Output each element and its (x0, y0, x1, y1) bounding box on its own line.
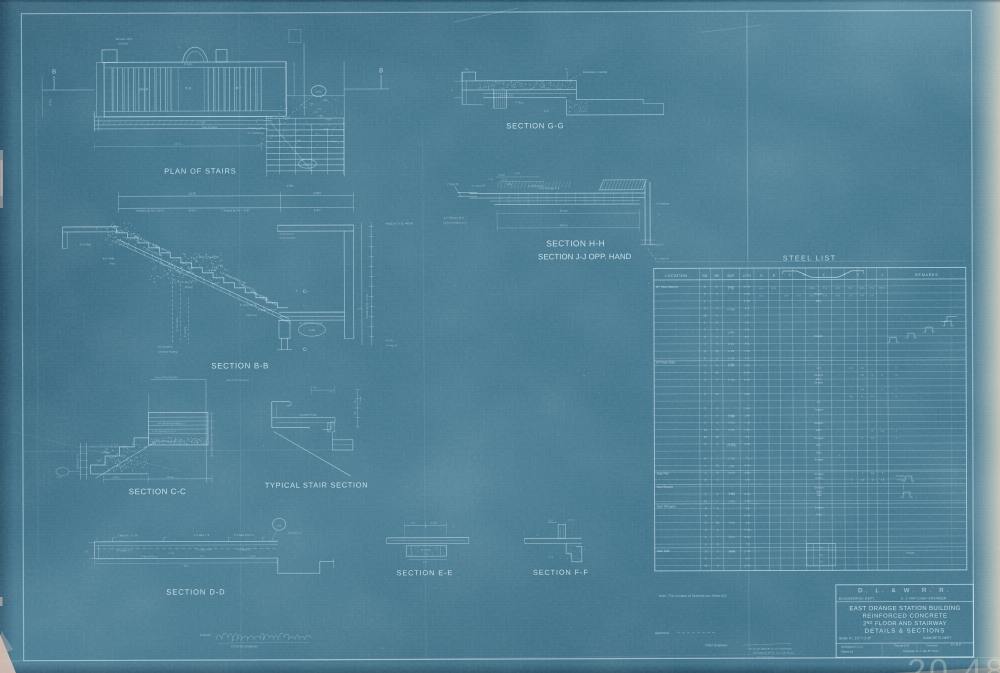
svg-text:1 Rd: 1 Rd (729, 464, 735, 468)
svg-text:6: 6 (659, 213, 661, 216)
svg-text:4½: 4½ (895, 373, 898, 377)
svg-text:½ Rd: ½ Rd (728, 356, 735, 360)
svg-text:B: B (773, 274, 775, 278)
svg-text:2½: 2½ (353, 411, 357, 414)
svg-text:MK: MK (714, 274, 720, 278)
svg-text:F.+ R.P.: F.+ R.P. (951, 643, 962, 647)
svg-text:12: 12 (704, 499, 708, 503)
svg-text:Rog.E.W. Fl. El. +46.88: Rog.E.W. Fl. El. +46.88 (386, 221, 414, 225)
svg-text:2-6: 2-6 (849, 367, 853, 370)
svg-text:8: 8 (704, 285, 706, 289)
svg-text:": " (676, 434, 677, 438)
svg-text:Plaster: Plaster (185, 286, 193, 289)
svg-text:2″ Beam 8'0" 1¼: 2″ Beam 8'0" 1¼ (249, 289, 270, 301)
svg-text:9'-6¼: 9'-6¼ (127, 459, 133, 464)
svg-text:7: 7 (717, 499, 719, 503)
svg-text:5'-3¼: 5'-3¼ (745, 549, 752, 553)
svg-text:REMARKS: REMARKS (915, 273, 938, 277)
svg-text:1″ Sq: 1″ Sq (728, 499, 735, 503)
svg-text:8'-0⅛: 8'-0⅛ (744, 535, 751, 539)
svg-text:Stair Rail: Stair Rail (656, 471, 669, 475)
svg-text:SECTION F-F: SECTION F-F (533, 568, 589, 577)
svg-text:F.V.B: F.V.B (309, 328, 316, 332)
svg-text:3'-9: 3'-9 (223, 269, 228, 273)
svg-text:¾: ¾ (648, 248, 651, 251)
svg-text:5"⅛: 5"⅛ (317, 109, 321, 111)
svg-text:2-8½: 2-8½ (809, 286, 814, 290)
svg-text:Rock Conc of: Rock Conc of (280, 233, 295, 236)
svg-text:3-1″ Bars 8'6: 3-1″ Bars 8'6 (471, 185, 485, 188)
svg-text:ENGINEERING DEPT.: ENGINEERING DEPT. (839, 596, 875, 600)
svg-text:D: D (803, 273, 805, 277)
svg-text:1″ Bars 10½ c.c.: 1″ Bars 10½ c.c. (141, 554, 159, 558)
svg-text:SECTION H-H: SECTION H-H (546, 238, 605, 248)
svg-text:4'-3: 4'-3 (549, 556, 554, 559)
svg-text:1 Rds: 1 Rds (728, 330, 735, 334)
svg-text:¾ Rds: ¾ Rds (727, 307, 735, 311)
svg-text:F: F (844, 273, 846, 277)
svg-text:Straight: Straight (895, 475, 904, 478)
svg-text:2-3 Bars 7'2½: 2-3 Bars 7'2½ (197, 548, 213, 552)
svg-text:9: 9 (716, 363, 718, 367)
svg-text:6'-6: 6'-6 (810, 294, 815, 297)
svg-text:2'-6: 2'-6 (502, 178, 507, 181)
svg-text:Stair Stringers: Stair Stringers (657, 504, 677, 508)
svg-text:1: 1 (704, 321, 706, 325)
svg-text:3″: 3″ (895, 430, 897, 433)
svg-text:3'-0: 3'-0 (836, 287, 841, 290)
svg-text:½ Rd: ½ Rd (728, 442, 735, 446)
svg-text:4: 4 (704, 363, 706, 367)
svg-text:4'-6⅜: 4'-6⅜ (286, 184, 294, 188)
svg-text:4″×6″ Bearing 8'-3 1¼: 4″×6″ Bearing 8'-3 1¼ (152, 430, 176, 433)
svg-text:N.Y.L.&W. RR Co.: N.Y.L.&W. RR Co. (757, 656, 775, 658)
svg-text:6'-3: 6'-3 (759, 287, 764, 290)
svg-text:¾: ¾ (96, 227, 99, 230)
svg-text:31: 31 (716, 463, 720, 467)
svg-text:3: 3 (882, 472, 884, 475)
svg-text:C-: C- (303, 289, 308, 294)
svg-text:1 Rd: 1 Rd (729, 491, 735, 495)
svg-text:12: 12 (704, 428, 708, 432)
svg-text:A: A (760, 274, 763, 278)
svg-text:6'-3½: 6'-3½ (250, 554, 256, 558)
svg-text:G: G (857, 273, 859, 277)
svg-text:4-6: 4-6 (861, 479, 865, 482)
svg-text:As Beam: As Beam (118, 42, 128, 45)
svg-text:1'-6¼: 1'-6¼ (284, 116, 290, 119)
svg-text:7-8¼: 7-8¼ (744, 406, 751, 410)
svg-text:7½: 7½ (85, 549, 88, 553)
svg-text:Concrete Tread: Concrete Tread (299, 414, 317, 417)
svg-text:5: 5 (717, 528, 719, 532)
svg-text:2″ Above of Floor 7'8": 2″ Above of Floor 7'8" (221, 271, 246, 285)
svg-text:7'-0¼: 7'-0¼ (330, 140, 336, 143)
svg-text:4″ Stirrups 9½: 4″ Stirrups 9½ (528, 184, 545, 188)
svg-text:7'-6: 7'-6 (170, 278, 175, 282)
svg-text:Expansion ½ Mortar: Expansion ½ Mortar (583, 70, 607, 74)
svg-text:7'-10½: 7'-10½ (116, 464, 123, 468)
svg-text:1: 1 (705, 535, 707, 539)
svg-text:1'-3¾: 1'-3¾ (186, 267, 192, 272)
svg-text:7 × 9: 7 × 9 (199, 120, 205, 124)
svg-text:2-6: 2-6 (820, 554, 824, 557)
svg-text:9: 9 (716, 378, 718, 382)
svg-text:7: 7 (717, 456, 719, 460)
svg-text:Chief Engineer: Chief Engineer (705, 643, 728, 647)
svg-text:4'-4½": 4'-4½" (314, 208, 322, 212)
svg-text:3: 3 (704, 335, 706, 339)
svg-text:Bent: Bent (816, 443, 822, 447)
svg-text:6'-0: 6'-0 (849, 287, 854, 290)
svg-text:3-6: 3-6 (820, 560, 824, 563)
svg-text:7'-0: 7'-0 (746, 542, 751, 546)
svg-text:3: 3 (704, 306, 706, 310)
svg-text:10'-1½: 10'-1½ (560, 209, 569, 213)
svg-text:1″ Plain Rℓ: 1″ Plain Rℓ (446, 183, 458, 186)
svg-text:4-½ Stirrups 9'-2: 4-½ Stirrups 9'-2 (539, 186, 559, 190)
svg-text:2: 2 (704, 292, 706, 296)
svg-text:5: 5 (716, 313, 718, 317)
svg-text:": " (675, 313, 676, 317)
svg-text:7'-6: 7'-6 (424, 553, 429, 556)
svg-text:4'-6½": 4'-6½" (189, 209, 197, 213)
svg-text:1″ Sq: 1″ Sq (728, 286, 735, 290)
svg-text:SECTION B-B: SECTION B-B (211, 361, 269, 370)
svg-text:": " (676, 449, 677, 453)
svg-text:1'-0⅛: 1'-0⅛ (295, 147, 301, 149)
svg-text:": " (676, 520, 677, 524)
svg-text:": " (676, 463, 677, 467)
svg-text:8: 8 (704, 356, 706, 360)
svg-text:SECTION G-G: SECTION G-G (506, 121, 564, 130)
svg-text:1″ Bars @ 10½ c.c. 5'-0": 1″ Bars @ 10½ c.c. 5'-0" (130, 233, 158, 248)
svg-text:Stair Wall: Stair Wall (657, 549, 670, 553)
svg-text:4: 4 (716, 328, 718, 332)
svg-text:5-4½: 5-4½ (744, 292, 751, 296)
svg-text:Stair Beams: Stair Beams (657, 485, 674, 489)
svg-text:3″ Furring: 3″ Furring (184, 326, 187, 337)
svg-text:Scale ¼″, 1½″ = 1′-0″: Scale ¼″, 1½″ = 1′-0″ (839, 636, 872, 640)
svg-text:2'-9½: 2'-9½ (295, 138, 301, 142)
svg-text:": " (676, 377, 677, 381)
svg-text:1″ Sq: 1″ Sq (728, 492, 735, 496)
svg-text:1½ Fl: 1½ Fl (56, 475, 62, 479)
svg-text:4-6: 4-6 (860, 367, 864, 370)
svg-text:4-6: 4-6 (817, 400, 821, 404)
svg-text:4-6: 4-6 (849, 395, 853, 398)
svg-text:½: ½ (565, 67, 568, 71)
svg-text:3: 3 (705, 478, 707, 482)
svg-text:7'-6: 7'-6 (200, 555, 205, 558)
svg-text:6: 6 (453, 526, 455, 528)
svg-text:9: 9 (717, 471, 719, 475)
svg-text:7'-6½: 7'-6½ (744, 349, 751, 353)
svg-text:5-¾″ Rods 10½ c.c. (6'-10½) B: 5-¾″ Rods 10½ c.c. (6'-10½) B (152, 439, 185, 443)
svg-text:1-8½: 1-8½ (744, 392, 751, 396)
svg-text:": " (676, 542, 677, 546)
svg-text:9 Risers @ 7½ = 5'-7½: 9 Risers @ 7½ = 5'-7½ (365, 294, 369, 318)
svg-text:16 T: 16 T (235, 86, 241, 90)
svg-text:3'-9¼: 3'-9¼ (189, 267, 195, 270)
svg-text:": " (676, 456, 677, 460)
svg-text:4-6: 4-6 (817, 366, 821, 370)
svg-text:3'-0: 3'-0 (423, 561, 428, 564)
svg-text:1'-6: 1'-6 (411, 522, 416, 525)
svg-text:4-¾ Bars 6'3: 4-¾ Bars 6'3 (237, 548, 252, 551)
svg-text:3: 3 (705, 442, 707, 446)
svg-text:Straight: Straight (814, 292, 823, 296)
svg-text:5: 5 (716, 335, 718, 339)
svg-text:6-8: 6-8 (316, 134, 320, 136)
svg-text:4'-0½: 4'-0½ (744, 285, 751, 289)
svg-text:31: 31 (716, 392, 720, 396)
svg-text:3'-0: 3'-0 (870, 294, 875, 297)
svg-text:6: 6 (705, 528, 707, 532)
svg-text:7'-9: 7'-9 (823, 294, 828, 297)
svg-text:5-8: 5-8 (107, 234, 112, 237)
svg-text:": " (676, 499, 677, 503)
svg-text:Approved: Approved (655, 631, 669, 635)
svg-text:Hooks: Hooks (815, 476, 823, 480)
svg-text:31: 31 (716, 521, 720, 525)
svg-text:Straight: Straight (815, 485, 824, 489)
svg-text:2″ Floor 8'0" ¾: 2″ Floor 8'0" ¾ (240, 303, 258, 307)
svg-text:3'-3¼: 3'-3¼ (326, 119, 332, 122)
svg-text:4'-0: 4'-0 (358, 307, 363, 310)
svg-text:6'-9⅛: 6'-9⅛ (744, 370, 751, 374)
svg-text:¾: ¾ (296, 289, 299, 293)
svg-text:¾ Rd: ¾ Rd (728, 349, 735, 353)
svg-text:2″ Bars c 10½ 8'0": 2″ Bars c 10½ 8'0" (142, 246, 163, 258)
svg-text:1: 1 (705, 464, 707, 468)
svg-text:": " (676, 527, 677, 531)
svg-text:Re-entrant in: Re-entrant in (158, 346, 173, 349)
svg-text:4'-6¼: 4'-6¼ (744, 442, 751, 446)
svg-text:3"½: 3"½ (310, 102, 314, 106)
svg-text:12: 12 (703, 313, 707, 317)
svg-text:4'-10½: 4'-10½ (386, 338, 394, 342)
svg-text:7'-3: 7'-3 (823, 287, 828, 290)
svg-text:¾: ¾ (96, 537, 98, 540)
svg-text:11'-8": 11'-8" (189, 192, 196, 196)
svg-text:3'-9¼: 3'-9¼ (323, 128, 329, 131)
svg-text:5"⅛: 5"⅛ (110, 457, 115, 461)
svg-text:4-6: 4-6 (881, 479, 885, 482)
svg-text:9-4¾: 9-4¾ (879, 287, 885, 290)
svg-text:2'-11½: 2'-11½ (184, 62, 193, 66)
svg-text:21'-8: 21'-8 (174, 142, 180, 146)
svg-text:": " (909, 559, 910, 562)
svg-text:2-6: 2-6 (860, 388, 864, 391)
svg-text:Straight: Straight (814, 380, 823, 384)
svg-text:5: 5 (717, 549, 719, 553)
svg-text:8'-3: 8'-3 (772, 287, 777, 290)
svg-text:8 Risers @ 7½" = 5'-0": 8 Risers @ 7½" = 5'-0" (137, 209, 164, 213)
svg-text:20 48: 20 48 (907, 652, 1000, 673)
svg-text:4: 4 (717, 556, 719, 560)
svg-text:Bent: Bent (816, 512, 822, 516)
svg-text:": " (676, 492, 677, 496)
svg-text:3″: 3″ (895, 395, 897, 398)
svg-text:5½: 5½ (277, 523, 281, 527)
svg-text:Straight: Straight (814, 407, 823, 411)
svg-text:2: 2 (704, 328, 706, 332)
svg-text:4'-9¾: 4'-9¾ (48, 98, 52, 105)
svg-text:SECTION J-J OPP. HAND: SECTION J-J OPP. HAND (538, 252, 632, 261)
svg-text:C: C (789, 273, 791, 277)
svg-text:": " (676, 341, 677, 345)
svg-text:22: 22 (716, 435, 720, 439)
svg-text:Straight: Straight (814, 457, 823, 461)
svg-text:4-6: 4-6 (881, 430, 885, 433)
svg-text:1 Riser 6'-0½: 1 Riser 6'-0½ (88, 444, 102, 448)
svg-text:2'-0: 2'-0 (549, 519, 554, 522)
svg-text:SIZE: SIZE (727, 274, 734, 278)
svg-text:3'-1×10½: 3'-1×10½ (421, 548, 431, 552)
svg-text:8-4⅛: 8-4⅛ (859, 287, 864, 290)
svg-text:": " (676, 356, 677, 360)
svg-text:1″ Plain 8'0" 1¼: 1″ Plain 8'0" 1¼ (237, 281, 257, 293)
svg-text:4: 4 (805, 540, 807, 543)
svg-text:⅝ Rd: ⅝ Rd (728, 471, 735, 475)
svg-text:Straight: Straight (814, 421, 823, 425)
svg-text:5: 5 (716, 413, 718, 417)
svg-text:4: 4 (705, 421, 707, 425)
svg-text:TYPICAL STAIR SECTION: TYPICAL STAIR SECTION (265, 480, 368, 489)
svg-text:1″ Bars: 1″ Bars (102, 451, 111, 454)
svg-text:Straight: Straight (814, 472, 823, 476)
svg-text:2″ Plain 10½ 7'3": 2″ Plain 10½ 7'3" (258, 308, 277, 312)
svg-text:LOCATION: LOCATION (665, 274, 687, 278)
svg-text:8"½: 8"½ (745, 342, 750, 346)
svg-text:1½ Rds: 1½ Rds (727, 443, 737, 447)
svg-text:Elevator Lobby: Elevator Lobby (116, 38, 133, 41)
svg-text:NO: NO (702, 274, 707, 278)
svg-text:¾ Rd: ¾ Rd (728, 428, 735, 432)
svg-text:Designed C.C.C.: Designed C.C.C. (841, 645, 864, 649)
svg-text:4-6: 4-6 (820, 546, 824, 549)
svg-text:9: 9 (717, 492, 719, 496)
svg-text:2: 2 (704, 392, 706, 396)
svg-text:5-¾ Bars 7'-3: 5-¾ Bars 7'-3 (194, 533, 210, 537)
svg-text:": " (676, 391, 677, 395)
svg-text:2-¾ Bars 4'-2: 2-¾ Bars 4'-2 (288, 532, 303, 535)
svg-text:⅝ Rd: ⅝ Rd (728, 363, 735, 367)
svg-text:1″ Sq: 1″ Sq (728, 456, 735, 460)
svg-text:4″: 4″ (916, 497, 918, 500)
svg-text:2: 2 (716, 285, 718, 289)
svg-text:1'-0: 1'-0 (849, 294, 854, 297)
svg-text:9'-9: 9'-9 (860, 294, 865, 297)
svg-text:5'-9⅛: 5'-9⅛ (744, 528, 751, 532)
svg-text:4'-3⅛: 4'-3⅛ (744, 299, 751, 303)
svg-text:B: B (52, 70, 56, 76)
svg-text:7½: 7½ (353, 400, 357, 403)
svg-text:2'-10¾ Floor: 2'-10¾ Floor (176, 318, 179, 332)
svg-text:24'-0: 24'-0 (184, 565, 190, 568)
svg-text:3″×4: 3″×4 (569, 519, 575, 522)
svg-text:1: 1 (704, 299, 706, 303)
svg-text:9: 9 (716, 292, 718, 296)
svg-text:": " (676, 513, 677, 517)
svg-text:": " (675, 334, 676, 338)
svg-text:5 Bars ¾″ c.c. 7½: 5 Bars ¾″ c.c. 7½ (118, 533, 139, 537)
svg-text:LGTH: LGTH (743, 274, 751, 278)
svg-text:Bent: Bent (816, 377, 822, 381)
svg-text:31: 31 (716, 371, 720, 375)
svg-text:¾ Rd: ¾ Rd (728, 413, 735, 417)
svg-text:1: 1 (704, 413, 706, 417)
svg-text:4'-3¾: 4'-3¾ (120, 454, 126, 457)
svg-text:3"¾: 3"¾ (745, 435, 750, 439)
svg-text:2'-9½: 2'-9½ (190, 255, 197, 261)
svg-text:J: J (881, 273, 883, 277)
svg-text:": " (676, 370, 677, 374)
svg-text:Straight: Straight (814, 373, 823, 377)
svg-text:4″ Plain c/c 10½: 4″ Plain c/c 10½ (258, 295, 278, 307)
svg-text:8'-8: 8'-8 (544, 109, 549, 113)
svg-text:2ᴺᴰ Floor Beams: 2ᴺᴰ Floor Beams (656, 285, 679, 289)
svg-text:Common Footing: Common Footing (158, 351, 178, 354)
svg-text:REINFORCED CONCRETE: REINFORCED CONCRETE (862, 613, 947, 619)
svg-text:4-6: 4-6 (871, 437, 875, 440)
svg-text:Correct:: Correct: (200, 633, 211, 637)
svg-text:4-6: 4-6 (870, 395, 874, 398)
svg-text:8-4¼: 8-4¼ (118, 229, 123, 232)
svg-text:4-4: 4-4 (746, 521, 750, 525)
svg-text:Hooks: Hooks (898, 479, 906, 482)
svg-text:9'-9⅛: 9'-9⅛ (175, 271, 181, 275)
svg-text:3-¾″ Rds: 3-¾″ Rds (80, 242, 92, 246)
svg-text:Line of: Line of (185, 281, 193, 284)
svg-text:3'-6: 3'-6 (745, 328, 750, 332)
svg-text:3: 3 (704, 406, 706, 410)
svg-text:8: 8 (872, 430, 874, 433)
svg-text:": " (676, 556, 677, 560)
svg-text:": " (676, 477, 677, 481)
svg-text:10½: 10½ (96, 458, 101, 462)
svg-text:4'-6: 4'-6 (836, 294, 841, 297)
svg-text:1'-9: 1'-9 (745, 420, 750, 424)
svg-text:Straight: Straight (815, 505, 824, 509)
svg-text:2: 2 (717, 428, 719, 432)
svg-text:4 Risers @ 7½: 4 Risers @ 7½ (75, 454, 79, 469)
svg-text:4-1″ Stirrups @ 4″: 4-1″ Stirrups @ 4″ (444, 216, 465, 220)
svg-text:2: 2 (717, 506, 719, 510)
svg-text:3: 3 (705, 549, 707, 553)
svg-text:J-J Rods #3: J-J Rods #3 (650, 242, 664, 246)
svg-text:4: 4 (882, 388, 884, 391)
svg-text:": " (675, 306, 676, 310)
svg-text:5-8: 5-8 (210, 263, 215, 266)
svg-text:4'-0½: 4'-0½ (304, 162, 310, 166)
svg-text:8: 8 (705, 514, 707, 518)
svg-text:Rail: Rail (817, 493, 822, 497)
svg-text:SECTION E-E: SECTION E-E (397, 568, 454, 577)
svg-text:6″: 6″ (895, 388, 897, 391)
svg-text:2ᴺᴰ FLOOR AND STAIRWAY: 2ᴺᴰ FLOOR AND STAIRWAY (863, 620, 947, 627)
svg-text:3'-0½: 3'-0½ (498, 173, 505, 177)
svg-text:2: 2 (705, 492, 707, 496)
svg-text:For the D.L.&W.R.R. Co. and Su: For the D.L.&W.R.R. Co. and Subsidiaries (749, 647, 793, 650)
svg-text:4"⅛: 4"⅛ (214, 283, 218, 285)
svg-text:6'-0¼: 6'-0¼ (744, 378, 751, 382)
svg-text:1 Rds: 1 Rds (728, 414, 735, 418)
svg-text:": " (676, 384, 677, 388)
svg-text:Concrete Engineer: Concrete Engineer (231, 644, 259, 648)
svg-text:SECTION D-D: SECTION D-D (166, 587, 225, 596)
